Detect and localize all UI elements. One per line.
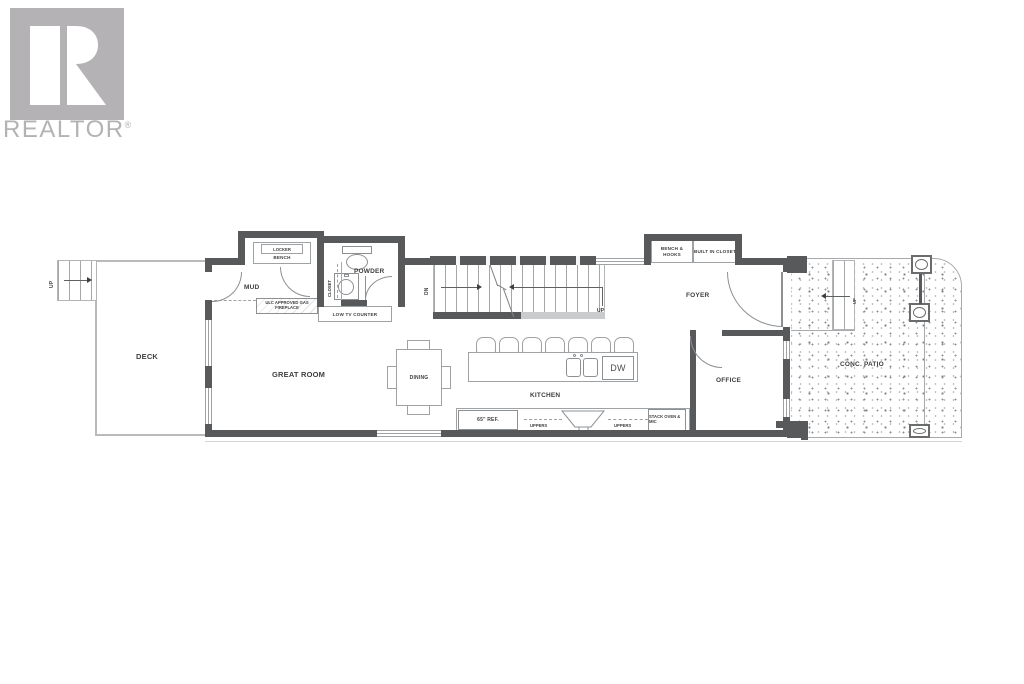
fridge-label: 65" REF.: [477, 417, 499, 423]
wall-segment: [801, 421, 808, 440]
bar-stool: [614, 337, 634, 353]
great-room-label: GREAT ROOM: [272, 370, 325, 379]
stack-oven-label: STACK OVEN & MIC: [649, 415, 685, 425]
deck-outline: [95, 260, 206, 436]
column-base-circle: [913, 307, 926, 318]
bench-hooks-box: BENCH & HOOKS: [651, 240, 693, 263]
mud-bench-unit: LOCKER BENCH: [253, 242, 311, 264]
patio-steps-arrowhead: [821, 293, 826, 299]
dining-label: DINING: [410, 375, 429, 381]
bar-stool: [499, 337, 519, 353]
stair-dn-arrowhead: [477, 284, 482, 290]
uppers-dashed-line: [524, 419, 562, 420]
range-hood-icon: [560, 410, 606, 432]
stair-up-arrow-line: [514, 287, 602, 288]
office-label: OFFICE: [716, 377, 741, 384]
patio-steps: [832, 260, 855, 330]
dishwasher-label: DW: [610, 363, 625, 373]
faucet-dot: [580, 354, 583, 357]
deck-stairs-arrowhead: [87, 277, 92, 283]
realtor-r-glyph: [10, 8, 124, 120]
wall-segment: [783, 258, 790, 272]
deck-stairs-up-label: UP: [49, 281, 55, 288]
uppers-dashed-line: [608, 419, 648, 420]
patio-railing: [919, 274, 922, 304]
wall-segment: [341, 300, 367, 306]
stair-base-dark: [433, 312, 521, 319]
mud-label: MUD: [244, 284, 259, 291]
patio-column: [787, 256, 807, 273]
wall-segment-window-band: [430, 256, 596, 265]
wall-segment: [742, 258, 783, 265]
powder-door-arc: [365, 276, 392, 300]
front-door-arc: [727, 272, 783, 327]
wall-segment: [205, 258, 212, 272]
mud-deck-door-arc: [212, 272, 242, 302]
low-tv-counter: LOW TV COUNTER: [318, 306, 392, 322]
stairs-dn-label: DN: [424, 287, 430, 295]
grade-line: [205, 441, 962, 442]
faucet-dot: [573, 354, 576, 357]
bar-stool: [568, 337, 588, 353]
mud-hall-door-arc: [280, 267, 310, 297]
wall-segment: [205, 366, 212, 388]
window: [783, 399, 790, 417]
patio-steps-up-label: UP: [852, 298, 857, 304]
tv-counter-label: LOW TV COUNTER: [333, 312, 378, 317]
closet-label: CLOSET: [327, 280, 332, 297]
locker-label: LOCKER: [273, 247, 291, 252]
patio-steps-edge: [791, 330, 855, 331]
bar-stool: [522, 337, 542, 353]
deck-stairs-arrow-line: [64, 280, 88, 281]
powder-label: POWDER: [354, 268, 384, 275]
patio-steps-arrow-line: [826, 296, 850, 297]
deck-label: DECK: [136, 352, 158, 361]
wall-segment: [783, 359, 790, 399]
floor-plan-page: REALTOR® UP CONC. PATIO UP DECK 65" REF.…: [0, 0, 1024, 684]
kitchen-sink: [583, 358, 598, 377]
window: [205, 320, 212, 366]
patio-column: [911, 255, 932, 274]
uppers-right-label: UPPERS: [614, 423, 631, 428]
dining-chair: [407, 405, 430, 415]
uppers-left-label: UPPERS: [530, 423, 547, 428]
window: [783, 341, 790, 359]
powder-faucet: [344, 274, 349, 277]
window: [377, 430, 441, 437]
built-in-closet-label: BUILT IN CLOSET: [694, 249, 736, 254]
dishwasher: DW: [602, 356, 634, 380]
closet-divider-line: [341, 262, 342, 300]
wall-segment: [205, 300, 212, 320]
wall-segment: [783, 327, 790, 341]
stair-base-light: [521, 312, 605, 319]
window: [596, 258, 646, 265]
stair-dn-arrow-line: [441, 287, 479, 288]
built-in-closet-box: BUILT IN CLOSET: [693, 240, 737, 263]
patio-outline: [790, 258, 962, 438]
dining-chair: [387, 366, 397, 389]
realtor-text: REALTOR: [3, 116, 125, 143]
wall-segment: [722, 330, 783, 336]
bar-stool: [545, 337, 565, 353]
refrigerator: 65" REF.: [458, 410, 518, 430]
fireplace-label: ULC APPROVED GAS FIREPLACE: [257, 301, 317, 311]
bar-stool: [476, 337, 496, 353]
patio-column: [909, 303, 930, 322]
bar-stool: [591, 337, 611, 353]
patio-roof-line: [924, 262, 925, 436]
wall-segment: [735, 234, 742, 265]
wall-segment: [238, 231, 324, 238]
patio-column: [909, 424, 930, 438]
foyer-label: FOYER: [686, 292, 709, 299]
realtor-wordmark: REALTOR®: [3, 116, 133, 144]
dining-table: DINING: [396, 349, 442, 406]
realtor-logo-icon: [10, 8, 124, 120]
kitchen-sink: [566, 358, 581, 377]
wall-segment: [398, 236, 405, 307]
wall-segment: [324, 236, 405, 243]
stack-oven: STACK OVEN & MIC: [648, 409, 686, 431]
registered-symbol: ®: [125, 120, 133, 130]
column-base-circle: [915, 259, 928, 270]
locker-box: LOCKER: [261, 244, 303, 254]
column-base-circle: [913, 428, 926, 434]
wall-segment: [317, 231, 324, 307]
wall-segment: [205, 430, 783, 437]
stairs-up-label: UP: [597, 308, 604, 314]
bench-label: BENCH: [273, 255, 290, 260]
dining-chair: [407, 340, 430, 350]
toilet-tank: [342, 246, 372, 254]
patio-label: CONC. PATIO: [840, 361, 884, 368]
stair-up-arrow-corner: [602, 287, 603, 306]
window: [205, 388, 212, 424]
gas-fireplace: ULC APPROVED GAS FIREPLACE: [256, 298, 318, 314]
closet-bifold-dashed: [337, 264, 338, 298]
kitchen-label: KITCHEN: [530, 392, 560, 399]
bench-hooks-label: BENCH & HOOKS: [652, 246, 692, 257]
dining-chair: [441, 366, 451, 389]
wall-segment: [644, 234, 742, 241]
